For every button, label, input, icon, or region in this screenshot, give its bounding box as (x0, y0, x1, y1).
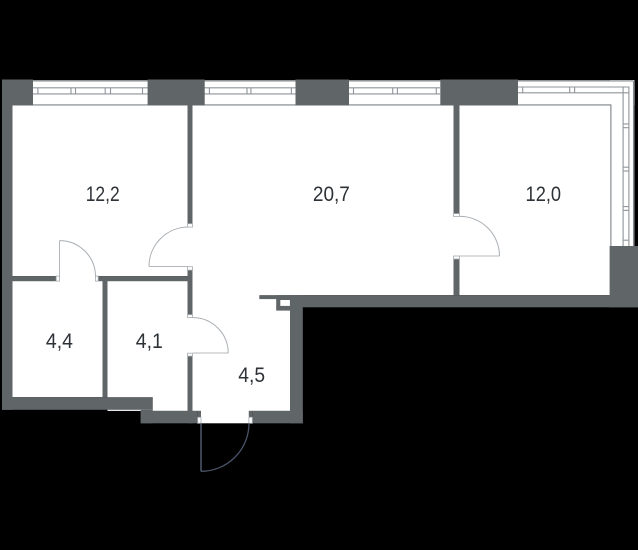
svg-text:4,4: 4,4 (46, 329, 73, 353)
svg-text:12,0: 12,0 (526, 182, 562, 206)
svg-text:4,1: 4,1 (136, 329, 163, 353)
svg-text:20,7: 20,7 (313, 182, 350, 206)
svg-text:12,2: 12,2 (86, 182, 120, 206)
svg-text:4,5: 4,5 (238, 363, 265, 387)
